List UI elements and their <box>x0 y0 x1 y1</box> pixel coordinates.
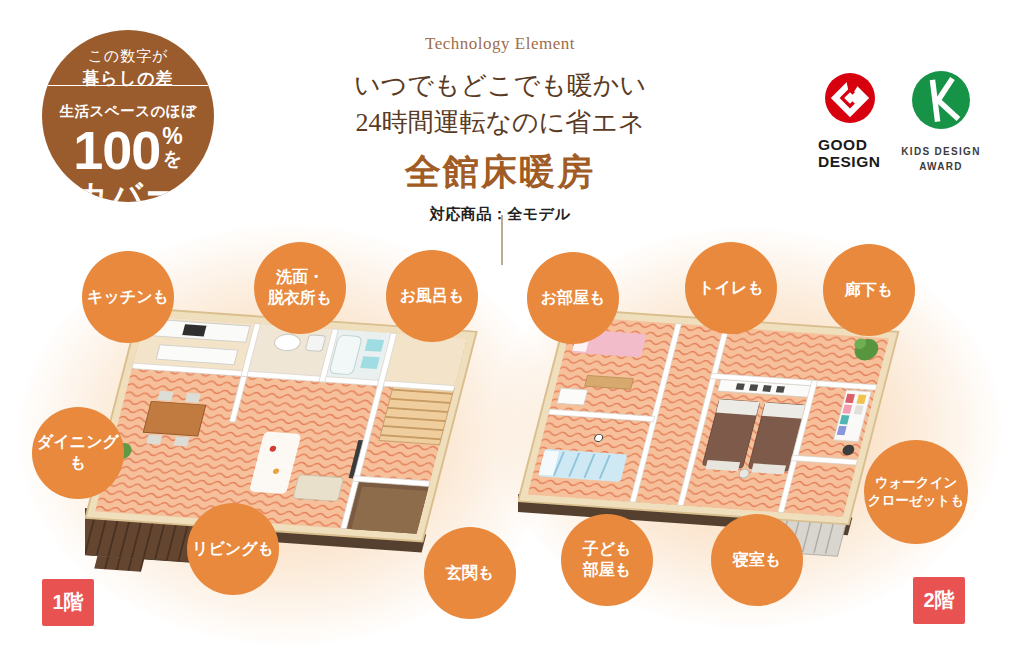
callout-hallway: 廊下も <box>823 244 915 336</box>
callout-hallway-label: 廊下も <box>845 280 893 301</box>
callout-kids-room-label-2: 部屋も <box>583 560 631 581</box>
callout-bath: お風呂も <box>386 250 478 342</box>
kids-design-label: KIDS DESIGN AWARD <box>901 144 981 174</box>
coverage-badge-bottom: カバー <box>42 179 214 202</box>
good-design-label: GOOD DESIGN <box>818 136 882 171</box>
callout-kids-room-label-1: 子ども <box>583 539 632 560</box>
eyebrow-label: Technology Element <box>330 34 670 54</box>
floor2-badge: 2階 <box>913 577 965 624</box>
percent-sign: % <box>162 125 182 148</box>
particle-wo: を <box>163 149 182 168</box>
callout-bedroom: 寝室も <box>711 514 803 606</box>
floor1-badge: 1階 <box>42 579 94 626</box>
coverage-badge-line2: 暮らしの差 <box>42 67 214 92</box>
callout-washroom-label-2: 脱衣所も <box>268 288 332 309</box>
good-design-label-line1: GOOD <box>818 136 882 153</box>
callout-walk-in-closet-label-1: ウォークイン <box>875 474 958 492</box>
coverage-percentage: 100 % を <box>42 123 214 177</box>
floor2-badge-label: 2階 <box>923 587 954 614</box>
coverage-badge-divider <box>42 85 214 86</box>
kids-design-award: KIDS DESIGN AWARD <box>901 70 981 174</box>
callout-dining-label: ダイニングも <box>32 432 124 474</box>
coverage-number: 100 <box>73 123 160 177</box>
page: この数字が 暮らしの差 生活スペースのほぼ 100 % を カバー Techno… <box>0 0 1024 652</box>
callout-room: お部屋も <box>527 252 619 344</box>
headline: いつでもどこでも暖かい 24時間運転なのに省エネ <box>330 68 670 142</box>
callout-living-label: リビングも <box>192 539 274 560</box>
callout-washroom: 洗面・ 脱衣所も <box>254 242 346 334</box>
callout-toilet-label: トイレも <box>698 278 764 299</box>
coverage-badge: この数字が 暮らしの差 生活スペースのほぼ 100 % を カバー <box>42 30 214 202</box>
coverage-badge-top: この数字が 暮らしの差 <box>42 30 214 91</box>
callout-walk-in-closet: ウォークイン クローゼットも <box>864 440 968 544</box>
kids-design-label-line2: AWARD <box>901 159 981 174</box>
callout-living: リビングも <box>187 503 279 595</box>
coverage-badge-lead: 生活スペースのほぼ <box>42 102 214 121</box>
callout-kitchen-label: キッチンも <box>87 287 169 308</box>
callout-kitchen: キッチンも <box>82 251 174 343</box>
headline-line1: いつでもどこでも暖かい <box>330 68 670 105</box>
coverage-badge-line1: この数字が <box>42 45 214 67</box>
callout-bath-label: お風呂も <box>400 286 465 307</box>
callout-entrance-label: 玄関も <box>446 563 494 584</box>
page-title: 全館床暖房 <box>330 148 670 197</box>
callout-washroom-label-1: 洗面・ <box>276 267 324 288</box>
kids-design-award-logo-icon <box>911 70 971 130</box>
callout-entrance: 玄関も <box>424 527 516 619</box>
floor1-badge-label: 1階 <box>52 589 83 616</box>
callout-bedroom-label: 寝室も <box>733 550 781 571</box>
callout-kids-room: 子ども 部屋も <box>561 514 653 606</box>
callout-walk-in-closet-label-2: クローゼットも <box>868 492 964 510</box>
callout-room-label: お部屋も <box>541 288 606 309</box>
good-design-logo-icon <box>825 73 875 123</box>
section-header: Technology Element いつでもどこでも暖かい 24時間運転なのに… <box>330 34 670 224</box>
callout-dining: ダイニングも <box>32 407 124 499</box>
good-design-label-line2: DESIGN <box>818 153 882 170</box>
kids-design-label-line1: KIDS DESIGN <box>901 144 981 159</box>
supported-models-label: 対応商品：全モデル <box>330 205 670 224</box>
vertical-divider <box>501 215 503 265</box>
good-design-award: GOOD DESIGN <box>818 73 882 171</box>
callout-toilet: トイレも <box>685 242 777 334</box>
headline-line2: 24時間運転なのに省エネ <box>330 105 670 142</box>
